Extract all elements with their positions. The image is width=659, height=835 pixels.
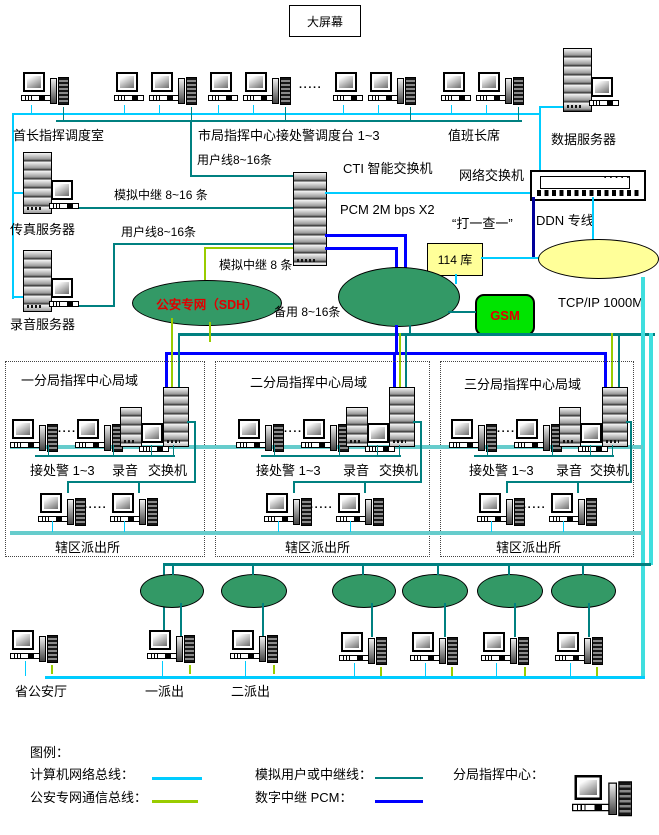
- line: [261, 455, 401, 457]
- workstation-icon: [339, 632, 393, 666]
- network-switch-icon: ·····: [530, 170, 646, 201]
- workstation-icon: [549, 493, 603, 527]
- user-line-a-label: 用户线8~16条: [197, 151, 272, 168]
- data-server-label: 数据服务器: [551, 129, 616, 148]
- workstation-icon: [476, 72, 530, 106]
- line: [508, 563, 510, 575]
- gsm-label: GSM: [490, 308, 520, 323]
- line: [506, 481, 508, 493]
- line: [67, 481, 69, 493]
- user-line-b-label: 用户线8~16条: [121, 223, 196, 240]
- line: [590, 445, 591, 455]
- line: [25, 661, 26, 676]
- station-lan-bus: [10, 531, 643, 535]
- line: [31, 105, 32, 113]
- line: [172, 563, 174, 575]
- network-cloud: [221, 574, 287, 608]
- workstation-icon: [449, 419, 503, 453]
- line: [582, 563, 584, 575]
- cti-switch-icon: [293, 172, 327, 266]
- phone-icon: [50, 77, 69, 104]
- line: [487, 445, 488, 455]
- line: [410, 107, 411, 120]
- switch-label: 交换机: [590, 460, 629, 479]
- network-cloud: [332, 574, 396, 608]
- phone-icon: [176, 635, 195, 662]
- phone-icon: [578, 498, 597, 525]
- line: [437, 563, 439, 575]
- phone-icon: [139, 498, 158, 525]
- station2-label: 二派出: [231, 681, 270, 700]
- line: [563, 521, 564, 532]
- division2-title: 二分局指挥中心局域: [250, 372, 367, 391]
- station1-label: 一派出: [145, 681, 184, 700]
- province-label: 省公安厅: [15, 681, 67, 700]
- line: [252, 563, 254, 575]
- analog-trunk-b-label: 模拟中继 8 条: [219, 256, 292, 273]
- ellipsis-dots: ·····: [84, 502, 107, 514]
- legend-analog-line-label: 模拟用户或中继线：: [255, 764, 372, 783]
- workstation-icon: [149, 72, 203, 106]
- line: [552, 445, 553, 455]
- line: [451, 667, 453, 676]
- network-cloud: [551, 574, 616, 608]
- legend-security-bus-label: 公安专网通信总线：: [30, 787, 147, 806]
- line: [380, 667, 382, 676]
- workstation-icon: [10, 419, 64, 453]
- dial-check-label: “打一查一”: [452, 213, 513, 232]
- network-topology-diagram: 大屏幕 ····· 首长指挥调度室 市局指挥中心接处警调度台 1~3 值班长席 …: [0, 0, 659, 835]
- ellipsis-dots: ·····: [523, 502, 546, 514]
- pbx-switch-icon: [602, 387, 628, 447]
- cti-switch-label: CTI 智能交换机: [343, 158, 433, 177]
- line: [539, 106, 541, 170]
- line: [350, 521, 351, 532]
- line: [51, 665, 53, 674]
- line: [343, 105, 344, 113]
- line: [209, 322, 211, 342]
- recording-server-icon: [23, 250, 52, 312]
- line: [455, 274, 457, 284]
- line: [138, 481, 140, 493]
- line: [113, 243, 115, 307]
- ddn-line: [532, 197, 535, 258]
- line: [245, 661, 246, 676]
- line: [204, 247, 293, 249]
- line: [496, 663, 497, 676]
- workstation-icon: [10, 630, 64, 664]
- big-screen-label: 大屏幕: [307, 13, 343, 30]
- line: [293, 481, 295, 493]
- gsm-box: GSM: [475, 294, 535, 336]
- legend-analog-line-swatch: [375, 777, 423, 779]
- workstation-icon: [555, 632, 609, 666]
- recording-server-label: 录音服务器: [10, 314, 75, 333]
- tcpip-label: TCP/IP 1000M: [558, 295, 643, 310]
- phone-icon: [584, 637, 603, 664]
- ellipsis-dots: ·····: [299, 82, 322, 94]
- line: [151, 445, 152, 455]
- line: [378, 105, 379, 113]
- pcm-label: PCM 2M bps X2: [340, 202, 435, 217]
- division1-title: 一分局指挥中心局域: [21, 370, 138, 389]
- backbone-line: [649, 333, 653, 565]
- line: [339, 445, 340, 455]
- switch-label: 交换机: [379, 460, 418, 479]
- line: [612, 445, 613, 455]
- station-label: 辖区派出所: [285, 537, 350, 556]
- line: [67, 481, 196, 483]
- phone-icon: [368, 637, 387, 664]
- line: [190, 175, 293, 177]
- pcm-line: [395, 325, 398, 353]
- line: [570, 663, 571, 676]
- chief-room-label: 首长指挥调度室: [13, 125, 104, 144]
- network-switch-label: 网络交换机: [459, 165, 524, 184]
- fax-server-label: 传真服务器: [10, 219, 75, 238]
- line: [524, 667, 526, 676]
- line: [325, 192, 530, 194]
- station-label: 辖区派出所: [496, 537, 561, 556]
- dispatch-label: 接处警 1~3: [30, 460, 95, 479]
- dispatch-label: 接处警 1~3: [469, 460, 534, 479]
- workstation-icon: [589, 77, 643, 111]
- line: [451, 105, 452, 113]
- line: [425, 663, 426, 676]
- line: [273, 665, 275, 674]
- line: [278, 521, 279, 532]
- recording-label: 录音: [112, 460, 138, 479]
- phone-icon: [39, 635, 58, 662]
- line: [124, 105, 125, 113]
- workstation-icon: [410, 632, 464, 666]
- line: [293, 481, 422, 483]
- line: [162, 661, 163, 676]
- line: [399, 445, 400, 455]
- line: [173, 445, 174, 455]
- line: [194, 421, 196, 483]
- line: [12, 192, 23, 194]
- station-label: 辖区派出所: [55, 537, 120, 556]
- bottom-trunk-bus: [163, 563, 651, 566]
- backbone-line: [641, 277, 645, 679]
- line: [448, 311, 476, 313]
- line: [409, 325, 411, 333]
- phone-icon: [397, 77, 416, 104]
- pcm-line: [395, 247, 398, 268]
- computer-bus-line: [12, 113, 540, 115]
- line: [491, 521, 492, 532]
- db114-label: 114 库: [438, 251, 472, 268]
- legend-division-center-label: 分局指挥中心：: [453, 764, 544, 783]
- line: [518, 107, 519, 120]
- phone-icon: [608, 781, 632, 815]
- phone-icon: [272, 77, 291, 104]
- pstn-cloud: [338, 267, 460, 327]
- big-screen-box: 大屏幕: [289, 5, 361, 37]
- line: [52, 521, 53, 532]
- line: [354, 663, 355, 676]
- switch-label: 交换机: [148, 460, 187, 479]
- line: [362, 563, 364, 575]
- fax-server-icon: [23, 152, 52, 214]
- pbx-switch-icon: [389, 387, 415, 447]
- analog-trunk-bus: [178, 333, 655, 336]
- line: [79, 305, 115, 307]
- legend-computer-bus-swatch: [152, 777, 202, 780]
- analog-trunk-a-label: 模拟中继 8~16 条: [114, 186, 208, 203]
- workstation-icon: [481, 632, 535, 666]
- duty-chief-label: 值班长席: [448, 125, 500, 144]
- ddn-label: DDN 专线: [536, 210, 594, 229]
- data-server-icon: [563, 48, 592, 112]
- line: [577, 481, 579, 493]
- workstation-icon: [21, 72, 75, 106]
- line: [364, 481, 366, 493]
- phone-icon: [178, 77, 197, 104]
- workstation-icon: [236, 419, 290, 453]
- bottom-computer-bus: [45, 676, 645, 679]
- analog-bus-line: [56, 120, 522, 122]
- line: [274, 445, 275, 455]
- line: [113, 243, 293, 245]
- pcm-line: [404, 234, 407, 268]
- network-cloud: [402, 574, 468, 608]
- line: [48, 445, 49, 455]
- network-cloud: [477, 574, 543, 608]
- legend-digital-pcm-label: 数字中继 PCM：: [255, 787, 353, 806]
- backup-line-label: 备用 8~16条: [274, 303, 340, 320]
- line: [539, 106, 563, 108]
- line: [79, 207, 293, 209]
- workstation-icon: [243, 72, 297, 106]
- line: [506, 481, 632, 483]
- line: [253, 105, 254, 113]
- pcm-line: [325, 247, 398, 250]
- line: [113, 445, 114, 455]
- legend-title: 图例：: [30, 742, 69, 761]
- phone-icon: [365, 498, 384, 525]
- ellipsis-dots: ·····: [604, 172, 632, 184]
- pcm-line: [325, 234, 407, 237]
- workstation-icon: [368, 72, 422, 106]
- city-dispatch-label: 市局指挥中心接处警调度台 1~3: [198, 125, 380, 144]
- workstation-icon: [110, 493, 164, 527]
- line: [218, 105, 219, 113]
- workstation-icon: [230, 630, 284, 664]
- line: [159, 105, 160, 113]
- line: [190, 120, 192, 177]
- workstation-icon: [572, 775, 640, 818]
- line: [592, 197, 594, 240]
- phone-icon: [505, 77, 524, 104]
- workstation-icon: [147, 630, 201, 664]
- phone-icon: [510, 637, 529, 664]
- line: [486, 105, 487, 113]
- pcm-bus: [165, 352, 607, 355]
- line: [191, 107, 192, 120]
- line: [474, 455, 614, 457]
- legend-computer-bus-label: 计算机网络总线：: [30, 764, 134, 783]
- line: [285, 107, 286, 120]
- ddn-cloud: [538, 239, 659, 279]
- phone-icon: [259, 635, 278, 662]
- network-cloud: [140, 574, 204, 608]
- line: [35, 455, 175, 457]
- recording-label: 录音: [343, 460, 369, 479]
- sdh-cloud-label: 公安专网（SDH）: [156, 294, 257, 313]
- dispatch-label: 接处警 1~3: [256, 460, 321, 479]
- db114-box: 114 库: [427, 243, 483, 276]
- division3-title: 三分局指挥中心局域: [464, 374, 581, 393]
- workstation-icon: [336, 493, 390, 527]
- legend-digital-pcm-swatch: [375, 800, 423, 803]
- recording-label: 录音: [556, 460, 582, 479]
- line: [596, 667, 598, 676]
- line: [12, 296, 23, 298]
- pbx-switch-icon: [163, 387, 189, 447]
- sdh-cloud: 公安专网（SDH）: [132, 280, 282, 326]
- line: [420, 421, 422, 483]
- line: [630, 421, 632, 483]
- ellipsis-dots: ·····: [310, 502, 333, 514]
- line: [377, 445, 378, 455]
- legend-security-bus-swatch: [152, 800, 198, 803]
- line: [63, 107, 64, 120]
- line: [189, 665, 191, 674]
- phone-icon: [439, 637, 458, 664]
- line: [204, 247, 206, 282]
- line: [124, 521, 125, 532]
